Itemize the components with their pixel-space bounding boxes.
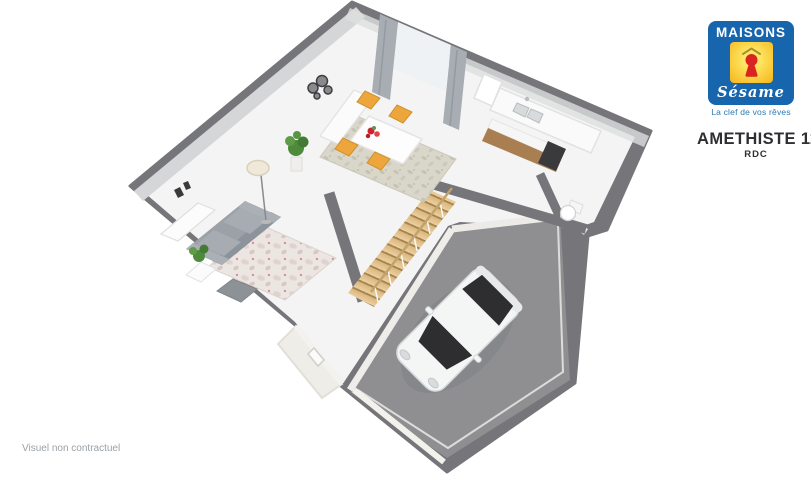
floor-plan-3d-render	[0, 0, 811, 480]
page: MAISONS Sésame La clef de vos rêves AMET…	[0, 0, 811, 480]
keyhole-icon	[730, 42, 773, 83]
brand-name-top: MAISONS	[708, 25, 794, 41]
floor-level-label: RDC	[700, 149, 811, 160]
disclaimer-text: Visuel non contractuel	[22, 443, 120, 454]
brand-logo: MAISONS Sésame	[708, 21, 794, 105]
toilet-bowl	[561, 206, 576, 221]
brand-name-bottom: Sésame	[708, 83, 794, 102]
model-title: AMETHISTE 110 GI	[697, 130, 811, 149]
brand-tagline: La clef de vos rêves	[699, 107, 803, 117]
kitchen-faucet	[525, 97, 529, 101]
